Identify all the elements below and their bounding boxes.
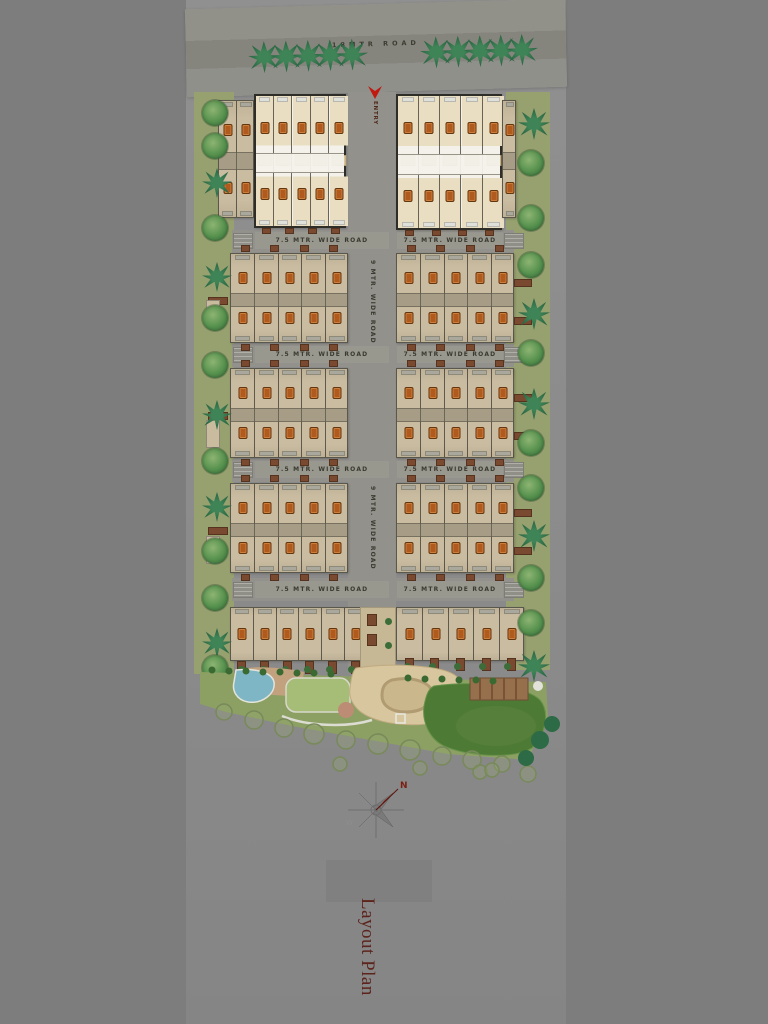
road-label: 7.5 MTR. WIDE ROAD [256,582,388,597]
swimming-pool [234,670,275,703]
round-tree-icon [518,205,544,231]
driveway-stub [329,459,338,466]
driveway-stub [436,344,445,351]
balcony [235,370,250,375]
balcony [296,220,307,225]
balcony [277,97,288,102]
balcony [235,336,250,341]
road-stamp [233,582,253,598]
driveway-stub [329,245,338,252]
balcony [472,566,487,571]
vertical-road-label: 9 MTR. WIDE ROAD [369,486,376,570]
driveway-stub [407,574,416,581]
balcony [423,222,436,227]
balcony [329,485,344,490]
balcony [222,211,233,216]
balcony [259,97,270,102]
driveway-stub [466,574,475,581]
balcony [425,255,440,260]
unit-marker-icon [425,122,434,134]
balcony [444,97,457,102]
building-block[interactable] [254,94,346,228]
balcony [333,97,345,102]
unit-marker-icon [262,272,271,284]
round-tree-icon [518,475,544,501]
driveway-stub [270,475,279,482]
unit-marker-icon [262,427,271,439]
block-core [231,293,347,307]
balcony [425,370,440,375]
unit-marker-icon [499,312,508,324]
lawn-mound [456,706,536,746]
unit-marker-icon [261,628,270,640]
unit-marker-icon [333,272,342,284]
unit-marker-icon [506,182,515,194]
unit-marker-icon [475,312,484,324]
unit-marker-icon [404,387,413,399]
driveway-stub [436,475,445,482]
road-label: 7.5 MTR. WIDE ROAD [398,582,502,597]
unit-marker-icon [404,122,413,134]
unit-marker-icon [446,190,455,202]
unit-marker-icon [404,272,413,284]
building-block[interactable] [396,483,514,573]
unit-marker-icon [335,188,344,200]
unit-column [299,608,322,660]
balcony [495,566,510,571]
balcony [448,255,463,260]
driveway-stub [495,574,504,581]
balcony [259,451,274,456]
balcony [303,609,317,614]
driveway-stub [329,344,338,351]
balcony [259,566,274,571]
unit-marker-icon [468,122,477,134]
building-block[interactable] [230,368,348,458]
building-block[interactable] [230,483,348,573]
driveway-stub [466,245,475,252]
gate-post [367,614,377,626]
balcony [282,255,297,260]
driveway-stub [436,245,445,252]
unit-marker-icon [475,427,484,439]
balcony [448,336,463,341]
balcony [329,336,344,341]
unit-marker-icon [475,387,484,399]
balcony [453,609,469,614]
unit-column [474,608,500,660]
block-core [231,408,347,422]
unit-marker-icon [297,122,306,134]
unit-marker-icon [428,272,437,284]
road-label-text: 7.5 MTR. WIDE ROAD [276,351,369,358]
balcony [258,609,272,614]
balcony [504,609,521,614]
balcony [487,97,500,102]
balcony [495,370,510,375]
round-tree-icon [518,252,544,278]
unit-column [322,608,345,660]
balcony [240,211,252,216]
driveway-stub [270,245,279,252]
balcony [428,609,444,614]
building-block[interactable] [502,100,516,218]
balcony [425,485,440,490]
unit-marker-icon [309,502,318,514]
driveway-stub [308,228,317,234]
unit-marker-icon [297,188,306,200]
unit-marker-icon [351,628,360,640]
block-core [503,152,515,170]
driveway-stub [514,279,532,287]
balcony [402,222,415,227]
north-needle [376,789,398,810]
unit-marker-icon [260,122,269,134]
driveway-stub [241,574,250,581]
driveway-stub [495,344,504,351]
driveway-stub [300,360,309,367]
unit-marker-icon [451,312,460,324]
unit-column [397,608,423,660]
unit-marker-icon [285,272,294,284]
driveway-stub [300,344,309,351]
unit-marker-icon [451,542,460,554]
unit-marker-icon [283,628,292,640]
driveway-stub [241,245,250,252]
balcony [425,451,440,456]
unit-marker-icon [428,542,437,554]
balcony [495,336,510,341]
balcony [329,255,344,260]
balcony [401,370,416,375]
unit-column [423,608,449,660]
unit-marker-icon [451,272,460,284]
driveway-stub [300,574,309,581]
unit-marker-icon [285,427,294,439]
site-plan-image: 18MTR ROAD 7.5 MTR. WIDE ROAD7.5 MTR. WI… [0,0,768,1024]
balcony [306,485,321,490]
unit-marker-icon [329,628,338,640]
balcony [472,336,487,341]
unit-marker-icon [489,190,498,202]
vertical-road-label: 9 MTR. WIDE ROAD [369,260,376,344]
balcony [259,255,274,260]
driveway-stub [466,344,475,351]
balcony [402,609,418,614]
round-tree-icon [518,565,544,591]
unit-marker-icon [262,312,271,324]
balcony [277,220,288,225]
driveway-stub [241,344,250,351]
entry-label: ENTRY [372,101,378,125]
unit-marker-icon [309,387,318,399]
balcony [240,102,252,107]
driveway-stub [407,344,416,351]
unit-marker-icon [499,427,508,439]
park-landscape [196,656,566,786]
driveway-stub [466,459,475,466]
unit-marker-icon [238,628,247,640]
driveway-stub [241,360,250,367]
unit-marker-icon [285,312,294,324]
unit-marker-icon [468,190,477,202]
balcony [259,336,274,341]
unit-marker-icon [242,124,251,136]
road-label-text: 7.5 MTR. WIDE ROAD [404,586,497,593]
block-core [231,523,347,537]
balcony [306,336,321,341]
unit-column [231,608,254,660]
balcony [425,336,440,341]
balcony [448,485,463,490]
unit-column [276,608,299,660]
gate-post [367,634,377,646]
round-tree-icon [518,610,544,636]
road-stamp [504,462,524,478]
bush-icon [385,618,392,625]
round-tree-icon [518,150,544,176]
balcony [235,255,250,260]
driveway-stub [407,475,416,482]
bush-icon [385,642,392,649]
driveway-stub [208,527,228,535]
block-core [397,523,513,537]
balcony [282,566,297,571]
unit-marker-icon [242,182,251,194]
unit-marker-icon [238,502,247,514]
unit-column [448,608,474,660]
building-block[interactable] [230,607,366,661]
balcony [472,451,487,456]
balcony [448,451,463,456]
round-tree-icon [518,340,544,366]
shadow-patch [326,860,432,902]
block-core [256,153,344,173]
balcony [235,451,250,456]
balcony [401,485,416,490]
block-core [398,154,500,174]
unit-marker-icon [404,312,413,324]
balcony [306,451,321,456]
unit-marker-icon [333,542,342,554]
unit-marker-icon [451,387,460,399]
round-tree-icon [202,305,228,331]
balcony [259,485,274,490]
balcony [235,566,250,571]
balcony [401,336,416,341]
unit-column [254,608,277,660]
balcony [506,211,515,216]
unit-marker-icon [223,124,232,136]
balcony [466,97,479,102]
road-label-text: 7.5 MTR. WIDE ROAD [404,351,497,358]
round-tree-icon [202,538,228,564]
unit-marker-icon [306,628,315,640]
play-circle [338,702,354,718]
unit-marker-icon [431,628,440,640]
balcony [448,370,463,375]
unit-marker-icon [333,387,342,399]
balcony [235,485,250,490]
round-tree-icon [202,448,228,474]
balcony [259,370,274,375]
driveway-stub [300,475,309,482]
road-stamp [504,233,524,249]
unit-marker-icon [508,628,517,640]
round-tree-icon [202,215,228,241]
balcony [306,566,321,571]
unit-marker-icon [278,122,287,134]
driveway-stub [285,228,294,234]
unit-marker-icon [404,502,413,514]
compass-rose-icon: N W [336,776,420,848]
compass-west-label: W [346,819,353,827]
unit-marker-icon [285,542,294,554]
driveway-stub [458,230,467,236]
driveway-stub [436,574,445,581]
driveway-stub [329,360,338,367]
unit-marker-icon [499,387,508,399]
building-block[interactable] [396,368,514,458]
road-label-text: 7.5 MTR. WIDE ROAD [404,466,497,473]
driveway-stub [495,245,504,252]
balcony [479,609,495,614]
driveway-stub [432,230,441,236]
balcony [472,255,487,260]
driveway-stub [407,459,416,466]
balcony [448,566,463,571]
unit-marker-icon [315,122,324,134]
balcony [306,370,321,375]
balcony [282,370,297,375]
driveway-stub [436,360,445,367]
balcony [282,336,297,341]
unit-marker-icon [333,427,342,439]
unit-marker-icon [499,502,508,514]
driveway-stub [262,228,271,234]
unit-marker-icon [238,312,247,324]
balcony [306,255,321,260]
unit-marker-icon [309,272,318,284]
unit-marker-icon [456,628,465,640]
driveway-stub [270,574,279,581]
unit-marker-icon [333,502,342,514]
balcony [423,97,436,102]
unit-marker-icon [475,502,484,514]
round-tree-icon [202,352,228,378]
unit-marker-icon [262,387,271,399]
balcony [506,102,515,107]
balcony [401,451,416,456]
unit-marker-icon [446,122,455,134]
driveway-stub [270,360,279,367]
balcony [472,485,487,490]
driveway-stub [329,574,338,581]
unit-marker-icon [499,542,508,554]
driveway-stub [241,459,250,466]
building-block[interactable] [396,607,524,661]
unit-marker-icon [489,122,498,134]
driveway-stub [270,459,279,466]
unit-marker-icon [499,272,508,284]
driveway-stub [514,547,532,555]
unit-marker-icon [238,387,247,399]
balcony [487,222,500,227]
unit-marker-icon [475,542,484,554]
driveway-stub [466,360,475,367]
balcony [333,220,345,225]
balcony [259,220,270,225]
balcony [495,451,510,456]
balcony [326,609,340,614]
unit-marker-icon [238,542,247,554]
balcony [329,566,344,571]
unit-marker-icon [428,427,437,439]
balcony [402,97,415,102]
round-tree-icon [518,430,544,456]
balcony [425,566,440,571]
driveway-stub [407,245,416,252]
unit-marker-icon [475,272,484,284]
road-label-text: 7.5 MTR. WIDE ROAD [276,466,369,473]
driveway-stub [329,475,338,482]
driveway-stub [300,459,309,466]
road-label-text: 7.5 MTR. WIDE ROAD [404,237,497,244]
building-block[interactable] [230,253,348,343]
balcony [329,370,344,375]
unit-marker-icon [428,387,437,399]
unit-marker-icon [451,502,460,514]
unit-marker-icon [425,190,434,202]
driveway-stub [241,475,250,482]
round-tree-icon [202,585,228,611]
unit-marker-icon [333,312,342,324]
unit-marker-icon [428,502,437,514]
unit-marker-icon [309,427,318,439]
building-block[interactable] [396,253,514,343]
balcony [495,255,510,260]
unit-marker-icon [404,427,413,439]
unit-marker-icon [262,502,271,514]
driveway-stub [270,344,279,351]
unit-marker-icon [451,427,460,439]
balcony [495,485,510,490]
driveway-stub [495,459,504,466]
unit-marker-icon [285,387,294,399]
driveway-stub [485,230,494,236]
balcony [280,609,294,614]
plan-title: Layout Plan [356,898,378,1024]
unit-marker-icon [238,427,247,439]
unit-marker-icon [262,542,271,554]
unit-marker-icon [309,312,318,324]
unit-marker-icon [506,124,515,136]
driveway-stub [466,475,475,482]
unit-marker-icon [405,628,414,640]
balcony [314,220,325,225]
driveway-stub [436,459,445,466]
building-block[interactable] [396,94,502,230]
block-core [397,293,513,307]
road-label-text: 7.5 MTR. WIDE ROAD [276,586,369,593]
compass-north-label: N [400,781,408,791]
unit-marker-icon [404,190,413,202]
unit-marker-icon [335,122,344,134]
unit-marker-icon [428,312,437,324]
unit-marker-icon [238,272,247,284]
driveway-stub [495,360,504,367]
driveway-stub [300,245,309,252]
